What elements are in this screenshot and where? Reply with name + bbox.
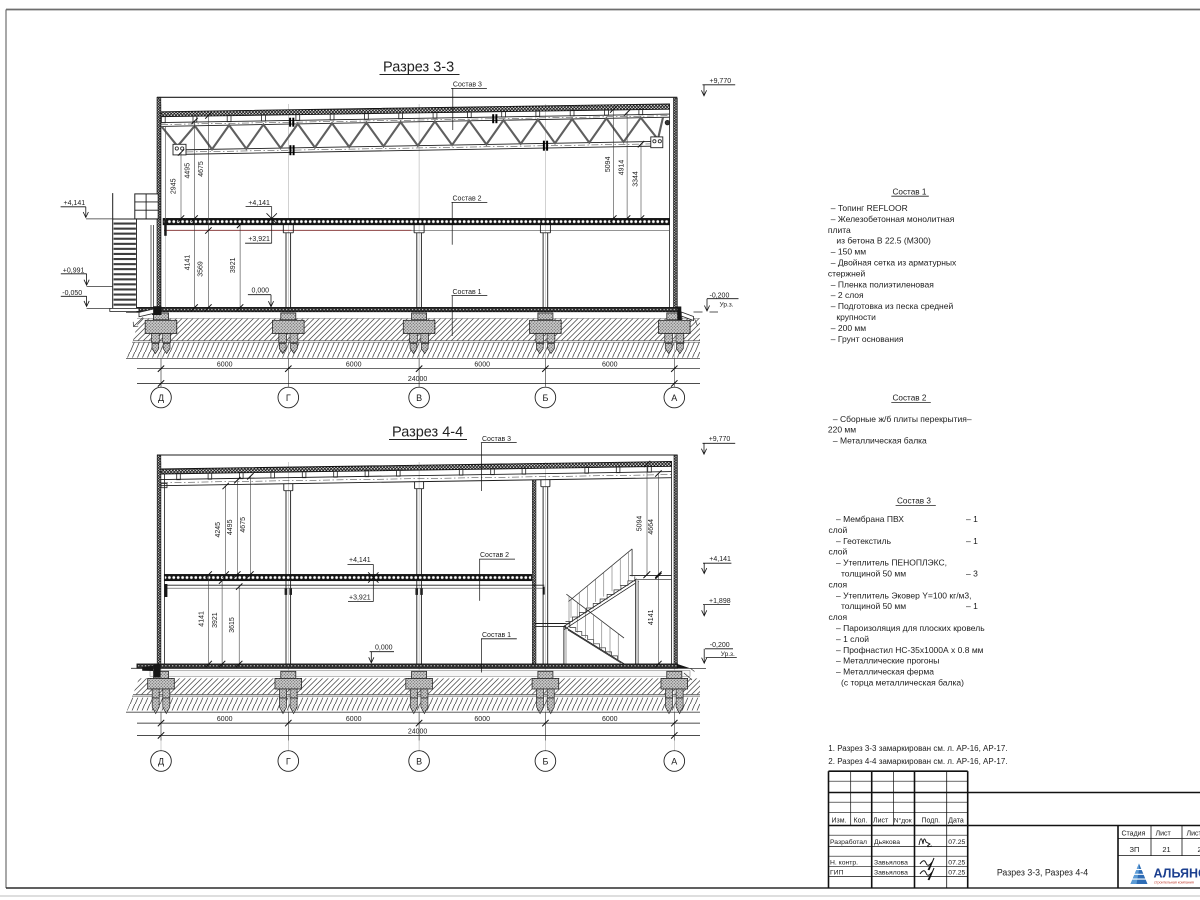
svg-text:А: А (671, 756, 677, 766)
svg-text:5094: 5094 (637, 516, 644, 532)
svg-text:4675: 4675 (198, 161, 205, 177)
svg-text:– Топинг REFLOOR: – Топинг REFLOOR (831, 203, 908, 213)
svg-text:А: А (671, 393, 677, 403)
svg-text:– Пароизоляция для плоских кро: – Пароизоляция для плоских кровель (836, 623, 985, 633)
svg-text:3615: 3615 (229, 617, 236, 633)
svg-text:крупности: крупности (836, 312, 876, 322)
svg-text:Завьялова: Завьялова (874, 869, 908, 876)
svg-text:4664: 4664 (648, 519, 655, 535)
svg-text:Д: Д (158, 756, 164, 766)
svg-text:Состав 1: Состав 1 (453, 289, 482, 296)
svg-text:АЛЬЯНС: АЛЬЯНС (1154, 867, 1200, 881)
svg-text:6000: 6000 (474, 716, 490, 723)
svg-text:Лист: Лист (873, 817, 889, 824)
svg-text:– 200 мм: – 200 мм (831, 323, 866, 333)
svg-text:4141: 4141 (648, 609, 655, 625)
svg-text:07.25: 07.25 (948, 859, 965, 866)
svg-text:Лист: Лист (1187, 831, 1200, 838)
svg-text:N°док: N°док (894, 816, 912, 824)
svg-text:6000: 6000 (217, 716, 233, 723)
svg-text:В: В (416, 393, 422, 403)
svg-text:Состав 3: Состав 3 (482, 436, 511, 443)
svg-text:Н. контр.: Н. контр. (830, 859, 858, 866)
svg-text:5094: 5094 (605, 156, 612, 172)
svg-text:3921: 3921 (230, 257, 237, 273)
svg-text:– 2 слоя: – 2 слоя (831, 290, 864, 300)
svg-text:6000: 6000 (346, 361, 362, 368)
svg-text:– Двойная сетка из арматурных: – Двойная сетка из арматурных (831, 258, 957, 268)
svg-text:плита: плита (828, 225, 851, 235)
svg-text:толщиной 50 мм: толщиной 50 мм (841, 569, 906, 579)
svg-text:Дьякова: Дьякова (874, 839, 900, 846)
svg-text:3569: 3569 (198, 261, 205, 277)
svg-text:6000: 6000 (602, 716, 618, 723)
svg-text:Завьялова: Завьялова (874, 859, 908, 866)
svg-text:6000: 6000 (602, 361, 618, 368)
svg-text:(с торца металлическая балка): (с торца металлическая балка) (841, 678, 964, 688)
svg-text:0,000: 0,000 (375, 645, 393, 652)
svg-text:4675: 4675 (240, 517, 247, 533)
svg-text:+4,141: +4,141 (64, 200, 86, 207)
svg-text:Состав 1: Состав 1 (893, 187, 927, 196)
svg-text:Г: Г (286, 393, 291, 403)
svg-text:2. Разрез 4-4 замаркирован см.: 2. Разрез 4-4 замаркирован см. л. АР-16,… (828, 757, 1007, 766)
svg-text:– Подготовка из песка средней: – Подготовка из песка средней (831, 301, 954, 311)
svg-text:24000: 24000 (408, 728, 428, 735)
svg-text:+1,898: +1,898 (709, 598, 731, 605)
svg-text:В: В (416, 756, 422, 766)
svg-text:– Металлическая балка: – Металлическая балка (833, 436, 927, 446)
svg-text:ЗП: ЗП (1130, 845, 1140, 854)
svg-text:4141: 4141 (198, 611, 205, 627)
svg-text:– Профнастил НС-35х1000А х 0.8: – Профнастил НС-35х1000А х 0.8 мм (836, 645, 984, 655)
svg-text:Состав 2: Состав 2 (453, 196, 482, 203)
svg-text:21: 21 (1162, 845, 1170, 854)
svg-text:Ур.з.: Ур.з. (720, 301, 734, 308)
svg-text:Состав 2: Состав 2 (893, 394, 927, 403)
svg-text:24000: 24000 (408, 376, 428, 383)
svg-text:07.25: 07.25 (948, 869, 965, 876)
svg-text:– Металлические прогоны: – Металлические прогоны (836, 656, 939, 666)
svg-text:– 3: – 3 (966, 569, 978, 579)
svg-text:-0,200: -0,200 (710, 642, 730, 649)
svg-text:стержней: стержней (828, 268, 866, 278)
svg-text:слой: слой (829, 525, 848, 535)
svg-text:– Мембрана ПВХ: – Мембрана ПВХ (836, 514, 904, 524)
svg-text:4495: 4495 (184, 163, 191, 179)
svg-text:Изм.: Изм. (832, 817, 847, 824)
svg-text:4914: 4914 (619, 160, 626, 176)
svg-text:из бетона В 22.5 (М300): из бетона В 22.5 (М300) (836, 236, 931, 246)
svg-text:– Металлическая ферма: – Металлическая ферма (836, 667, 934, 677)
svg-text:4141: 4141 (184, 255, 191, 271)
svg-text:+3,921: +3,921 (248, 236, 270, 243)
svg-text:– 150 мм: – 150 мм (831, 247, 866, 257)
svg-text:Д: Д (158, 393, 164, 403)
svg-text:+9,770: +9,770 (709, 436, 731, 443)
svg-text:Состав 3: Состав 3 (897, 497, 931, 506)
svg-text:+4,141: +4,141 (248, 200, 270, 207)
svg-text:3344: 3344 (633, 171, 640, 187)
svg-text:– Железобетонная монолитная: – Железобетонная монолитная (831, 214, 955, 224)
svg-text:Дата: Дата (948, 817, 964, 824)
svg-text:+3,921: +3,921 (349, 594, 371, 601)
svg-text:Б: Б (542, 756, 548, 766)
svg-text:Лист: Лист (1156, 831, 1172, 838)
svg-text:Г: Г (286, 756, 291, 766)
svg-text:Разработал: Разработал (830, 838, 867, 846)
svg-text:3921: 3921 (212, 612, 219, 628)
svg-text:6000: 6000 (346, 716, 362, 723)
svg-text:– Утеплитель ПЕНОПЛЭКС,: – Утеплитель ПЕНОПЛЭКС, (836, 558, 947, 568)
svg-text:Стадия: Стадия (1122, 831, 1146, 838)
svg-text:– Пленка полиэтиленовая: – Пленка полиэтиленовая (831, 279, 934, 289)
svg-text:слоя: слоя (829, 579, 848, 589)
svg-text:+9,770: +9,770 (710, 78, 732, 85)
svg-text:Состав 2: Состав 2 (480, 552, 509, 559)
svg-text:4245: 4245 (215, 522, 222, 538)
svg-text:– 1: – 1 (966, 601, 978, 611)
svg-text:ГИП: ГИП (830, 869, 844, 876)
svg-text:– Сборные ж/б плиты перекрытия: – Сборные ж/б плиты перекрытия– (833, 414, 972, 424)
svg-text:+4,141: +4,141 (709, 556, 731, 563)
svg-text:6000: 6000 (474, 361, 490, 368)
svg-text:+0,991: +0,991 (63, 267, 85, 274)
svg-text:– Грунт основания: – Грунт основания (831, 334, 904, 344)
svg-text:– 1 слой: – 1 слой (836, 634, 869, 644)
svg-text:слоя: слоя (829, 612, 848, 622)
svg-text:0,000: 0,000 (252, 288, 270, 295)
svg-text:строительная компания: строительная компания (1154, 880, 1194, 884)
svg-text:Подп.: Подп. (922, 817, 941, 824)
svg-text:Разрез 3-3: Разрез 3-3 (383, 60, 454, 76)
svg-text:07.25: 07.25 (948, 839, 965, 846)
svg-text:Состав 1: Состав 1 (482, 632, 511, 639)
svg-text:Ур.з.: Ур.з. (721, 651, 735, 658)
svg-text:6000: 6000 (217, 361, 233, 368)
svg-text:– Геотекстиль: – Геотекстиль (836, 536, 892, 546)
svg-text:Кол.: Кол. (854, 817, 868, 824)
svg-text:– Утеплитель Эковер Y=100 кг/м: – Утеплитель Эковер Y=100 кг/м3, (836, 590, 972, 600)
svg-text:1. Разрез 3-3 замаркирован см.: 1. Разрез 3-3 замаркирован см. л. АР-16,… (828, 744, 1007, 753)
svg-text:Разрез 4-4: Разрез 4-4 (392, 425, 463, 441)
svg-text:– 1: – 1 (966, 536, 978, 546)
svg-text:+4,141: +4,141 (349, 557, 371, 564)
svg-text:220 мм: 220 мм (828, 425, 856, 435)
svg-text:– 1: – 1 (966, 514, 978, 524)
svg-text:4495: 4495 (227, 519, 234, 535)
svg-text:2945: 2945 (170, 178, 177, 194)
svg-text:Б: Б (542, 393, 548, 403)
svg-text:Состав 3: Состав 3 (453, 82, 482, 89)
svg-text:-0,200: -0,200 (710, 292, 730, 299)
svg-text:слой: слой (829, 547, 848, 557)
svg-text:Разрез 3-3, Разрез 4-4: Разрез 3-3, Разрез 4-4 (997, 867, 1088, 877)
svg-text:толщиной 50 мм: толщиной 50 мм (841, 601, 906, 611)
svg-text:-0,050: -0,050 (62, 290, 82, 297)
